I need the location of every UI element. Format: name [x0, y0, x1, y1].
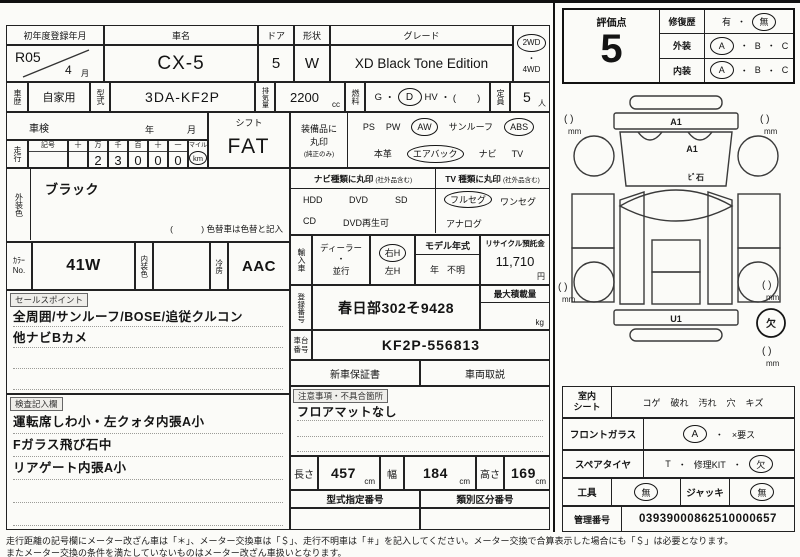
dot: ・: [767, 64, 776, 77]
score-cell: 評価点 5: [564, 10, 660, 82]
spare-missing-circled: 欠: [749, 455, 773, 473]
wheel-front-right: [738, 136, 778, 176]
evaluation-box: 評価点 5 修復歴 有 ・ 無 外装 A ・ B ・ C: [562, 8, 795, 84]
tv-fullseg-circled: フルセグ: [444, 191, 492, 208]
fuel-label-cell: 燃料: [345, 82, 365, 112]
width-cell: 184 cm: [404, 456, 476, 490]
missing-mark-label: 欠: [766, 317, 776, 330]
length-label: 長さ: [294, 466, 314, 481]
mm-label-mid-left: mm: [562, 295, 576, 304]
manual-label: 車両取説: [465, 366, 505, 381]
mm-paren-mid-right: ( ): [762, 280, 771, 291]
notes-tab: 注意事項・不具合箇所: [293, 389, 388, 403]
class-number-cell: [420, 508, 550, 530]
interior-grade-label: 内装: [660, 59, 705, 82]
spare-kit: 修理KIT: [694, 458, 726, 471]
mileage-unit-cell: マイル km: [188, 140, 208, 168]
capacity-cell: 5 人: [510, 82, 550, 112]
car-name-header: 車名: [104, 25, 258, 45]
ac-label: 冷房: [215, 259, 223, 274]
warranty-label: 新車保証書: [330, 366, 380, 381]
mm-label-top-right: mm: [764, 127, 778, 136]
ac-cell: AAC: [228, 242, 290, 290]
auction-sheet: 初年度登録年月 車名 ドア 形状 グレード R05 4 月 CX-5 5 W X…: [0, 0, 800, 557]
roof-rear: [652, 272, 700, 304]
door-header: ドア: [258, 25, 294, 45]
sales-line-4: [13, 369, 283, 390]
shift-label: シフト: [209, 116, 289, 129]
exterior-grade-row: 外装 A ・ B ・ C: [660, 34, 793, 58]
seat-items: コゲ 破れ 汚れ 穴 キズ: [612, 387, 794, 417]
drive-2wd-circled: 2WD: [517, 34, 547, 52]
wheel-front-left: [574, 136, 614, 176]
displacement-label-cell: 排気量: [255, 82, 275, 112]
notes-line-1-text: フロアマットなし: [297, 405, 397, 419]
check-line-4: [13, 480, 283, 503]
tv-oneseg: ワンセグ: [500, 195, 536, 208]
sales-line-3: [13, 348, 283, 369]
length-label-cell: 長さ: [290, 456, 318, 490]
check-tab: 検査記入欄: [10, 397, 63, 411]
mileage-digit: 2: [94, 152, 101, 169]
shape-header: 形状: [294, 25, 330, 45]
import-parallel: 並行: [332, 266, 349, 277]
windshield-options: A ・ ×要ス: [644, 419, 794, 449]
check-line-3: リアゲート内張A小: [13, 457, 283, 480]
mm-label-mid-right: mm: [766, 293, 780, 302]
sales-line-1-text: 全周囲/サンルーフ/BOSE/追従クルコン: [13, 310, 243, 324]
spare-tire-label: スペアタイヤ: [575, 457, 631, 471]
sill-left: [620, 192, 644, 304]
front-plate: [630, 96, 722, 109]
interior-grade-a-circled: A: [710, 61, 734, 79]
seat-label-1: 室内: [578, 391, 596, 402]
exterior-grade-label: 外装: [660, 34, 705, 57]
repair-dot: ・: [737, 15, 746, 28]
ext-color-label: 外装色: [15, 193, 23, 217]
exterior-grade-c: C: [782, 41, 789, 51]
seat-row: 室内 シート コゲ 破れ 汚れ 穴 キズ: [562, 386, 795, 418]
payload-unit: kg: [536, 318, 544, 327]
payload-header: 最大積載量: [481, 286, 549, 303]
fuel-hv: HV: [425, 92, 438, 103]
mileage-col-10: 十 0: [148, 140, 168, 168]
mileage-label: 走行: [13, 146, 21, 162]
notes-line-2: [297, 421, 543, 437]
reg-date-cell: R05 4 月: [6, 45, 104, 82]
check-block: 検査記入欄 運転席しわ小・左クォタ内張A小 Fガラス飛び石中 リアゲート内張A小: [6, 394, 290, 530]
windshield-label-cell: フロントガラス: [563, 419, 644, 449]
mileage-symbol-label: 記号: [29, 141, 67, 152]
equip-pw: PW: [386, 122, 401, 132]
panel-left-front: [572, 194, 614, 248]
nav-sd: SD: [395, 195, 408, 205]
length-unit: cm: [364, 477, 375, 486]
tools-label: 工具: [577, 485, 596, 499]
nav-hdd: HDD: [303, 195, 323, 205]
shape-value: W: [305, 55, 319, 72]
exterior-grade-options: A ・ B ・ C: [705, 34, 793, 57]
dot: ・: [740, 39, 749, 52]
recycle-value-row: 11,710: [481, 251, 549, 271]
displacement-value: 2200: [290, 90, 319, 105]
mileage-col-header: 百: [129, 141, 147, 152]
model-label: 型式: [96, 89, 104, 105]
mileage-col-header: 一: [169, 141, 187, 152]
chassis-cell: KF2P-556813: [312, 330, 550, 360]
jack-label-cell: ジャッキ: [681, 479, 730, 505]
interior-color-label: 内装色: [140, 255, 148, 278]
mm-label-bottom-right: mm: [766, 359, 780, 368]
windshield-damage-label: A1: [686, 144, 698, 154]
sales-line-2-text: 他ナビBカメ: [13, 331, 88, 345]
mileage-digit: 0: [154, 152, 161, 169]
color-no-label-kana: ｶﾗｰ: [13, 256, 25, 266]
headlight-left: [638, 132, 662, 140]
seat-stain: 汚れ: [698, 396, 716, 409]
recycle-value: 11,710: [496, 254, 535, 269]
equipment-label-2: 丸印: [310, 135, 328, 148]
repair-row: 修復歴 有 ・ 無: [660, 10, 793, 34]
right-handle-circled: 右H: [379, 244, 407, 262]
tv-analog: アナログ: [446, 217, 482, 230]
ac-label-cell: 冷房: [210, 242, 228, 290]
jack-label: ジャッキ: [686, 485, 724, 499]
model-year-value-row: 年 不明: [416, 255, 479, 283]
reg-date-header: 初年度登録年月: [6, 25, 104, 45]
color-no-value: 41W: [66, 257, 100, 275]
displacement-unit: cc: [332, 100, 340, 109]
windshield-a-circled: A: [683, 425, 707, 443]
grade-value: XD Black Tone Edition: [355, 56, 488, 71]
mileage-col-10k: 万 2: [88, 140, 108, 168]
shaken-label: 車検: [29, 120, 49, 135]
mileage-col-1k: 千 3: [108, 140, 128, 168]
interior-grade-row: 内装 A ・ B ・ C: [660, 59, 793, 82]
ext-color-cell: 外装色 ブラック ( ) 色替車は色替と記入: [6, 168, 290, 242]
mileage-digit: 0: [134, 152, 141, 169]
reg-month-unit: 月: [81, 68, 89, 79]
seat-hole: 穴: [727, 396, 736, 409]
roof-front: [652, 240, 700, 272]
height-cell: 169 cm: [504, 456, 550, 490]
nav-dvd: DVD: [349, 195, 368, 205]
repair-options: 有 ・ 無: [705, 10, 793, 33]
interior-color-label-cell: 内装色: [135, 242, 153, 290]
tools-label-cell: 工具: [563, 479, 612, 505]
admin-number-value-cell: 03939000862510000657: [622, 507, 794, 531]
fuel-paren: ・ ( ): [441, 90, 481, 104]
equipment-label-1: 装備品に: [301, 122, 337, 135]
drive-4wd: 4WD: [523, 65, 541, 74]
headlight-right: [688, 132, 712, 140]
fuel-dot: ・: [385, 90, 395, 104]
wheel-rear-left: [574, 262, 614, 302]
capacity-label: 定員: [496, 89, 504, 105]
grade-label: グレード: [403, 29, 439, 42]
admin-number-label-cell: 管理番号: [563, 507, 622, 531]
width-unit: cm: [459, 477, 470, 486]
height-label-cell: 高さ: [476, 456, 504, 490]
fuel-gasoline: G: [375, 92, 382, 103]
color-no-label-no: No.: [13, 266, 25, 276]
stone-chip-label: ﾋﾞ石: [688, 172, 704, 182]
length-value: 457: [331, 465, 356, 481]
model-year-unit: 年: [430, 263, 439, 276]
door-cell: 5: [258, 45, 294, 82]
model-value: 3DA-KF2P: [145, 89, 220, 105]
car-name-cell: CX-5: [104, 45, 258, 82]
mileage-col-100k: 十: [68, 140, 88, 168]
notes-line-1: フロアマットなし: [297, 403, 543, 421]
exterior-grade-a-circled: A: [710, 37, 734, 55]
km-circled: km: [189, 151, 207, 165]
equip-sunroof: サンルーフ: [449, 120, 493, 133]
displacement-cell: 2200 cc: [275, 82, 345, 112]
width-value: 184: [423, 465, 448, 481]
capacity-value: 5: [523, 89, 531, 105]
grade-header: グレード: [330, 25, 513, 45]
model-year-label: モデル年式: [425, 239, 470, 252]
history-cell: 自家用: [28, 82, 90, 112]
rear-bumper-damage-label: U1: [670, 314, 682, 324]
sill-right: [708, 192, 732, 304]
width-label: 幅: [387, 466, 397, 481]
top-rule: [0, 0, 800, 3]
equip-aw-circled: AW: [411, 118, 437, 136]
registration-value: 春日部302そ9428: [338, 298, 454, 318]
mile-label: マイル: [189, 141, 207, 150]
fuel-cell: G ・ D HV ・ ( ): [365, 82, 490, 112]
sales-tab: セールスポイント: [10, 293, 88, 307]
front-bumper-damage-label: A1: [670, 117, 682, 127]
check-line-2-text: Fガラス飛び石中: [13, 438, 112, 452]
reg-year: R05: [15, 49, 41, 65]
repair-no-circled: 無: [752, 13, 776, 31]
interior-color-cell: [153, 242, 210, 290]
equipment-items: PS PW AW サンルーフ ABS 本革 エアバック ナビ TV: [348, 113, 549, 167]
nav-cd: CD: [303, 216, 316, 226]
mileage-digit: 0: [174, 152, 181, 169]
notes-line-3: [297, 437, 543, 452]
equip-tv: TV: [512, 149, 524, 159]
nav-type-items: HDD DVD SD CD DVD再生可: [291, 189, 436, 233]
class-number-label: 類別区分番号: [456, 492, 513, 506]
dot: ・: [767, 39, 776, 52]
spare-t: T: [665, 459, 671, 469]
shape-label: 形状: [303, 29, 321, 42]
seat-label-cell: 室内 シート: [563, 387, 612, 417]
tv-type-header: TV 種類に丸印 (社外品含む): [436, 169, 549, 189]
mileage-col-100: 百 0: [128, 140, 148, 168]
history-label-cell: 車歴: [6, 82, 28, 112]
registration-cell: 春日部302そ9428: [312, 285, 480, 330]
length-cell: 457 cm: [318, 456, 380, 490]
nav-type-header-note: (社外品含む): [375, 174, 412, 184]
mileage-label-cell: 走行: [6, 140, 28, 168]
tv-type-header-label: TV 種類に丸印: [445, 173, 501, 185]
shift-cell: シフト FAT: [208, 112, 290, 168]
warranty-cell: 新車保証書: [290, 360, 420, 386]
hood-outline: [620, 132, 732, 186]
equip-airbag-circled: エアバック: [407, 145, 464, 163]
check-line-5: [13, 503, 283, 526]
color-no-cell: 41W: [32, 242, 135, 290]
equip-abs-circled: ABS: [504, 118, 534, 136]
shape-cell: W: [294, 45, 330, 82]
payload-label: 最大積載量: [494, 288, 537, 300]
check-line-1: 運転席しわ小・左クォタ内張A小: [13, 411, 283, 434]
exterior-grade-b: B: [755, 41, 761, 51]
ext-color-value: ブラック: [45, 179, 99, 198]
shaken-year-unit: 年: [145, 123, 154, 136]
check-line-3-text: リアゲート内張A小: [13, 461, 127, 475]
model-year-cell: モデル年式 年 不明: [415, 235, 480, 285]
recycle-label: リサイクル預託金: [485, 238, 545, 249]
class-number-header: 類別区分番号: [420, 490, 550, 508]
history-label: 車歴: [13, 89, 21, 105]
rear-plate: [630, 329, 722, 341]
registration-label-cell: 登録番号: [290, 285, 312, 330]
model-year-header: モデル年式: [416, 236, 479, 255]
grade-rows: 修復歴 有 ・ 無 外装 A ・ B ・ C 内装: [660, 10, 793, 82]
sales-block: セールスポイント 全周囲/サンルーフ/BOSE/追従クルコン 他ナビBカメ: [6, 290, 290, 394]
model-year-value: 不明: [447, 263, 465, 276]
windshield-dot: ・: [715, 428, 724, 441]
capacity-label-cell: 定員: [490, 82, 510, 112]
door-value: 5: [272, 55, 280, 72]
chassis-label-cell: 車台 番号: [290, 330, 312, 360]
capacity-unit: 人: [538, 98, 546, 109]
recycle-cell: リサイクル預託金 11,710 円: [480, 235, 550, 285]
payload-cell: 最大積載量 kg: [480, 285, 550, 330]
spare-tire-options: T ・ 修理KIT ・ 欠: [644, 451, 794, 477]
mm-paren-bottom-right: ( ): [762, 346, 771, 357]
windshield-label: フロントガラス: [570, 427, 636, 441]
sales-line-1: 全周囲/サンルーフ/BOSE/追従クルコン: [13, 306, 283, 327]
equipment-label-note: (純正のみ): [304, 148, 334, 158]
import-dealer-cell: ディーラー ・ 並行: [312, 235, 370, 285]
color-no-label-cell: ｶﾗｰ No.: [6, 242, 32, 290]
height-value: 169: [511, 465, 536, 481]
equipment-cell: 装備品に 丸印 (純正のみ) PS PW AW サンルーフ ABS 本革 エアバ…: [290, 112, 550, 168]
seat-scratch: キズ: [746, 396, 764, 409]
mileage-symbol-cell: 記号: [28, 140, 68, 168]
admin-number-value: 03939000862510000657: [639, 513, 777, 525]
mm-paren-top-left: ( ): [564, 114, 573, 125]
handle-cell: 右H 左H: [370, 235, 415, 285]
equipment-row-2: 本革 エアバック ナビ TV: [348, 140, 549, 167]
tools-value-cell: 無: [612, 479, 681, 505]
interior-grade-options: A ・ B ・ C: [705, 59, 793, 82]
dot: ・: [740, 64, 749, 77]
mileage-col-header: 万: [89, 141, 107, 152]
displacement-label: 排気量: [262, 87, 269, 108]
height-label: 高さ: [480, 466, 500, 481]
chassis-label-1: 車台: [294, 336, 309, 345]
car-name-value: CX-5: [157, 53, 204, 75]
ext-color-note: ( ) 色替車は色替と記入: [170, 223, 283, 235]
nav-type-header: ナビ種類に丸印 (社外品含む): [291, 169, 436, 189]
notes-block: 注意事項・不具合箇所 フロアマットなし: [290, 386, 550, 456]
interior-grade-b: B: [755, 65, 761, 75]
tools-none-circled: 無: [634, 483, 658, 501]
shift-value: FAT: [209, 135, 289, 159]
spare-tire-row: スペアタイヤ T ・ 修理KIT ・ 欠: [562, 450, 795, 478]
chassis-label-2: 番号: [294, 345, 309, 354]
drive-cell: 2WD ・ 4WD: [513, 25, 550, 82]
dot: ・: [678, 458, 687, 471]
width-label-cell: 幅: [380, 456, 404, 490]
seat-burn: コゲ: [642, 396, 660, 409]
equip-navi: ナビ: [479, 147, 497, 160]
admin-number-row: 管理番号 03939000862510000657: [562, 506, 795, 532]
model-label-cell: 型式: [90, 82, 110, 112]
tv-type-items: フルセグ ワンセグ アナログ: [436, 189, 549, 233]
windshield-row: フロントガラス A ・ ×要ス: [562, 418, 795, 450]
import-label-cell: 輸入車: [290, 235, 312, 285]
import-label: 輸入車: [297, 248, 305, 272]
panel-divider: [553, 0, 555, 532]
jack-none-circled: 無: [750, 483, 774, 501]
equip-leather: 本革: [374, 147, 392, 160]
left-handle: 左H: [385, 264, 401, 277]
tools-row: 工具 無 ジャッキ 無: [562, 478, 795, 506]
mileage-col-header: 十: [69, 141, 87, 152]
repair-yes: 有: [722, 15, 731, 28]
fuel-diesel-circled: D: [398, 88, 422, 106]
equipment-label-cell: 装備品に 丸印 (純正のみ): [291, 113, 348, 167]
jack-value-cell: 無: [730, 479, 794, 505]
mileage-col-header: 千: [109, 141, 127, 152]
ext-color-label-cell: 外装色: [7, 169, 31, 240]
sales-line-2: 他ナビBカメ: [13, 327, 283, 348]
reg-date-label: 初年度登録年月: [23, 29, 86, 42]
fuel-label: 燃料: [351, 89, 359, 105]
recycle-header: リサイクル預託金: [481, 236, 549, 251]
history-value: 自家用: [43, 89, 76, 105]
interior-grade-c: C: [782, 65, 789, 75]
footer-note-2: またメーター交換の条件を満たしていないものはメーター改ざん車扱いとなります。: [6, 546, 796, 557]
seat-label-2: シート: [573, 402, 600, 413]
footer-note-1-text: 走行距離の記号欄にメーター改ざん車は「＊」、メーター交換車は「＄」、走行不明車は…: [6, 536, 733, 546]
type-number-label: 型式指定番号: [326, 492, 383, 506]
door-label: ドア: [267, 29, 285, 42]
height-unit: cm: [535, 477, 546, 486]
seat-tear: 破れ: [670, 396, 688, 409]
tv-type-header-note: (社外品含む): [503, 174, 540, 184]
shaken-month-unit: 月: [187, 123, 196, 136]
car-diagram: A1 A1 ﾋﾞ石 U1 欠 ( ) mm ( ) mm ( ) mm ( ) …: [556, 90, 796, 384]
chassis-value: KF2P-556813: [382, 337, 480, 353]
registration-label: 登録番号: [297, 293, 305, 323]
model-cell: 3DA-KF2P: [110, 82, 255, 112]
shaken-cell: 車検 年 月: [6, 112, 208, 140]
spare-tire-label-cell: スペアタイヤ: [563, 451, 644, 477]
windshield-x: ×要ス: [732, 428, 755, 441]
mm-paren-top-right: ( ): [760, 114, 769, 125]
manual-cell: 車両取説: [420, 360, 550, 386]
nav-type-header-label: ナビ種類に丸印: [314, 173, 374, 185]
footer-note-2-text: またメーター交換の条件を満たしていないものはメーター改ざん車扱いとなります。: [6, 548, 347, 557]
dot: ・: [733, 458, 742, 471]
type-number-cell: [290, 508, 420, 530]
mm-label-top-left: mm: [568, 127, 582, 136]
car-name-label: 車名: [172, 29, 190, 42]
drive-dot: ・: [528, 53, 536, 64]
check-line-1-text: 運転席しわ小・左クォタ内張A小: [13, 415, 205, 429]
check-line-2: Fガラス飛び石中: [13, 434, 283, 457]
